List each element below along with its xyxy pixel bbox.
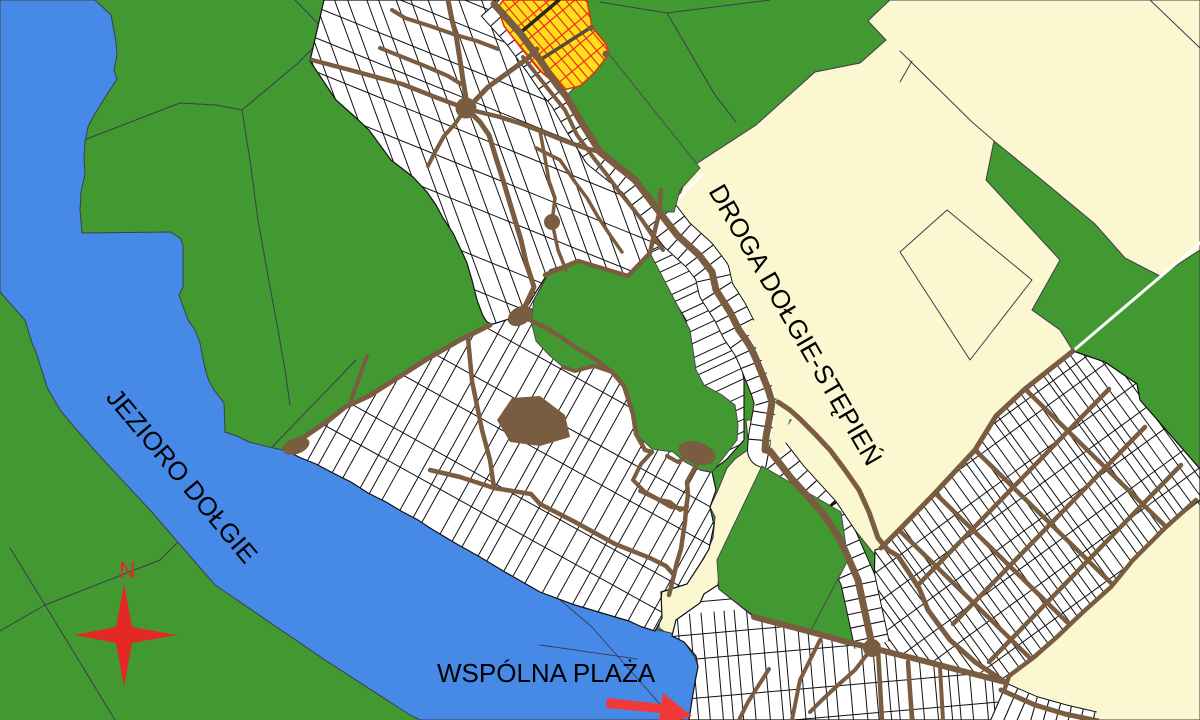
svg-text:WSPÓLNA PLAŻA: WSPÓLNA PLAŻA	[437, 658, 656, 688]
svg-text:N: N	[119, 557, 136, 583]
